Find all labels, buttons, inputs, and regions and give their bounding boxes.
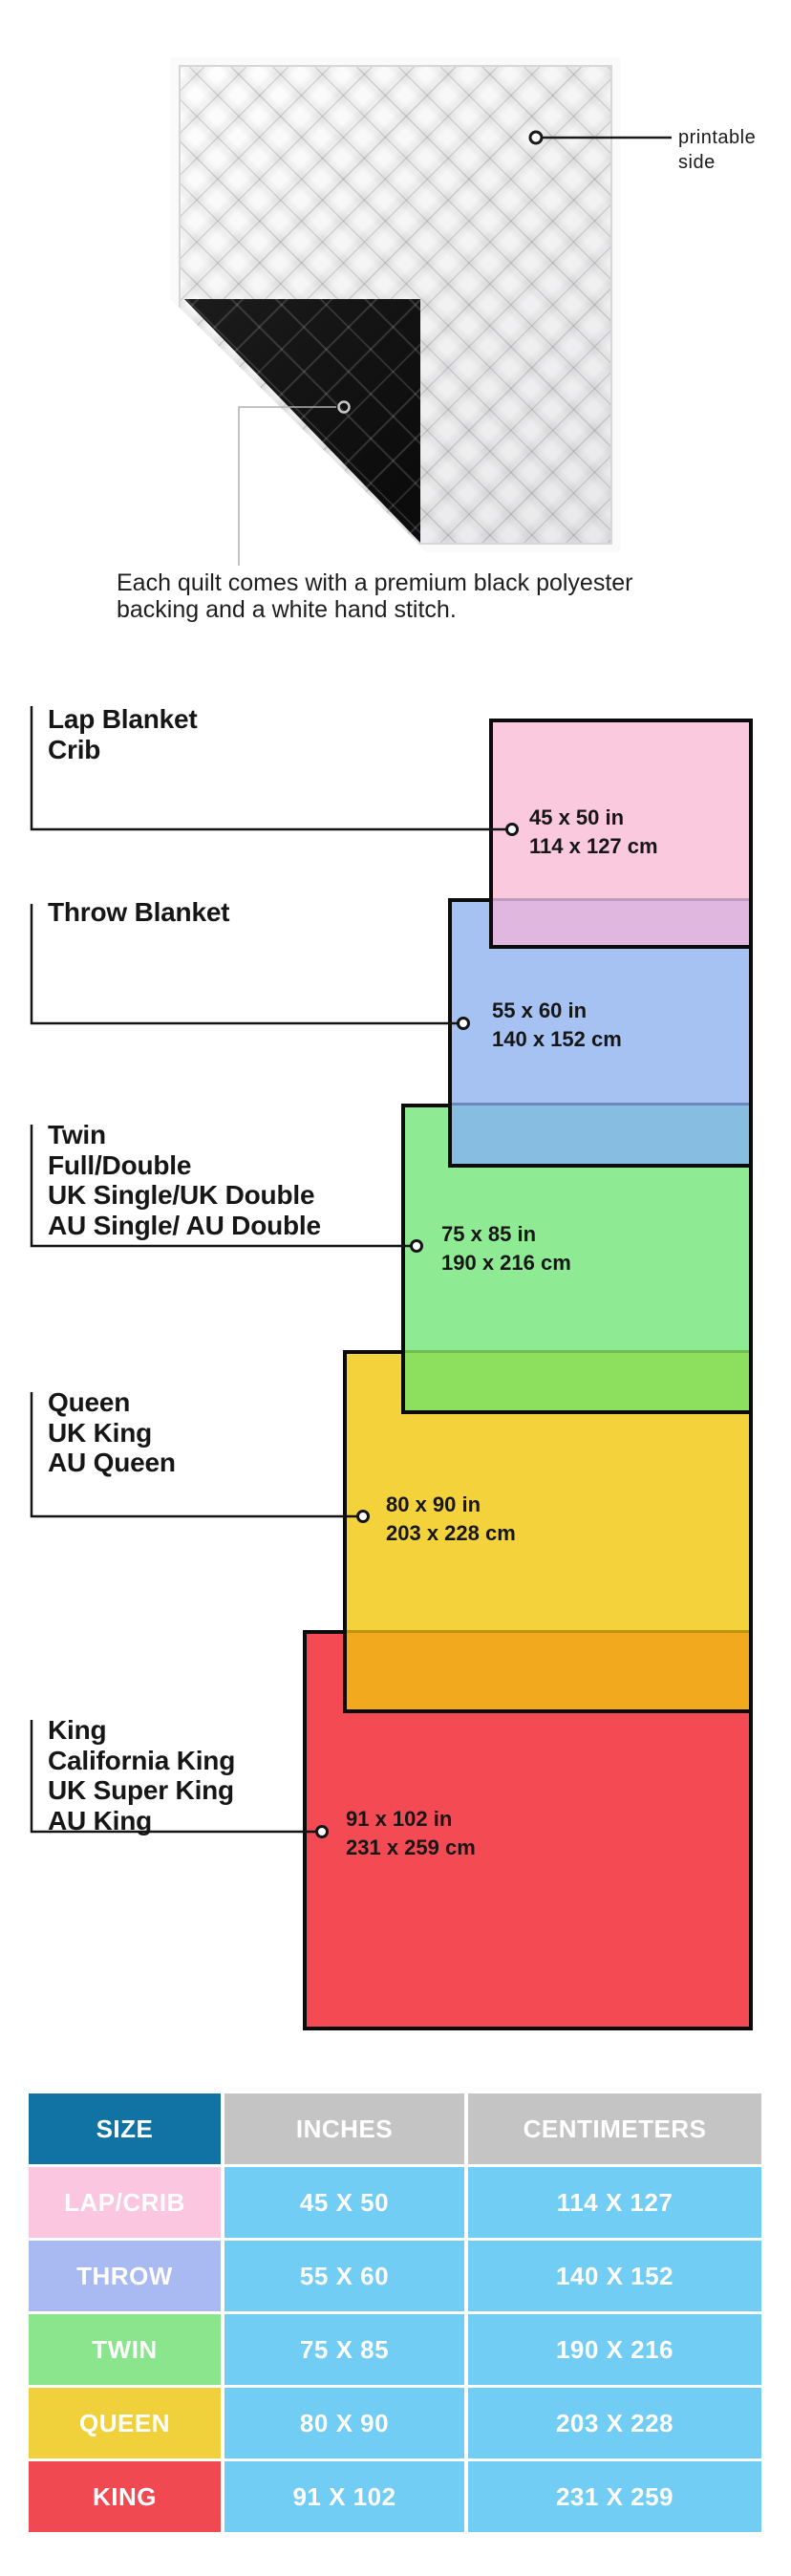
backing-caption: Each quilt comes with a premium black po…	[117, 570, 690, 623]
size-label-line: Twin	[48, 1120, 321, 1150]
size-label-line: UK Single/UK Double	[48, 1180, 321, 1211]
dimension-cm: 114 x 127 cm	[529, 832, 658, 861]
dimension-inches: 55 x 60 in	[492, 997, 622, 1025]
size-label-lap: Lap Blanket Crib	[48, 704, 198, 764]
table-cell-cm-twin: 190 X 216	[468, 2314, 761, 2385]
table-cell-cm-king: 231 X 259	[468, 2461, 761, 2532]
table-cell-inches-twin: 75 X 85	[224, 2314, 464, 2385]
overlap-band-throw-over-twin	[452, 1103, 749, 1164]
size-table: SIZE INCHES CENTIMETERS LAP/CRIB 45 X 50…	[29, 2093, 761, 2532]
dimension-inches: 80 x 90 in	[386, 1491, 516, 1519]
size-label-line: UK King	[48, 1418, 176, 1449]
table-cell-inches-queen: 80 X 90	[224, 2388, 464, 2458]
table-cell-cm-lap: 114 X 127	[468, 2167, 761, 2238]
size-label-line: AU King	[48, 1806, 235, 1836]
size-label-line: Lap Blanket	[48, 704, 198, 735]
printable-side-label: printable side	[678, 125, 778, 175]
table-cell-inches-throw: 55 X 60	[224, 2241, 464, 2311]
overlap-band-lap-over-throw	[493, 898, 749, 945]
dimension-text-lap: 45 x 50 in 114 x 127 cm	[529, 804, 658, 861]
dimension-cm: 231 x 259 cm	[346, 1834, 476, 1862]
table-cell-inches-king: 91 X 102	[224, 2461, 464, 2532]
size-label-line: AU Single/ AU Double	[48, 1211, 321, 1241]
dimension-cm: 190 x 216 cm	[441, 1249, 571, 1277]
dimension-text-twin: 75 x 85 in 190 x 216 cm	[441, 1220, 571, 1277]
table-cell-cm-queen: 203 X 228	[468, 2388, 761, 2458]
dimension-inches: 75 x 85 in	[441, 1220, 571, 1249]
size-label-line: AU Queen	[48, 1448, 176, 1478]
table-cell-size-throw: THROW	[29, 2241, 221, 2311]
dimension-cm: 203 x 228 cm	[386, 1519, 516, 1548]
dimension-inches: 45 x 50 in	[529, 804, 658, 832]
dimension-inches: 91 x 102 in	[346, 1805, 476, 1834]
size-label-line: King	[48, 1715, 235, 1746]
size-label-line: California King	[48, 1746, 235, 1776]
dimension-text-king: 91 x 102 in 231 x 259 cm	[346, 1805, 476, 1862]
dimension-text-throw: 55 x 60 in 140 x 152 cm	[492, 997, 622, 1054]
table-cell-cm-throw: 140 X 152	[468, 2241, 761, 2311]
size-label-line: Throw Blanket	[48, 897, 229, 928]
size-label-line: UK Super King	[48, 1775, 235, 1806]
table-header-size: SIZE	[29, 2093, 221, 2164]
quilt-size-chart-page: printable side Each quilt comes with a p…	[0, 0, 791, 2576]
size-label-line: Full/Double	[48, 1150, 321, 1181]
table-cell-inches-lap: 45 X 50	[224, 2167, 464, 2238]
table-cell-size-queen: QUEEN	[29, 2388, 221, 2458]
table-cell-size-king: KING	[29, 2461, 221, 2532]
overlap-band-queen-over-king	[347, 1630, 749, 1709]
size-label-throw: Throw Blanket	[48, 897, 229, 928]
table-cell-size-twin: TWIN	[29, 2314, 221, 2385]
size-label-twin: Twin Full/Double UK Single/UK Double AU …	[48, 1120, 321, 1240]
size-label-king: King California King UK Super King AU Ki…	[48, 1715, 235, 1835]
table-header-centimeters: CENTIMETERS	[468, 2093, 761, 2164]
overlap-band-twin-over-queen	[405, 1350, 749, 1410]
table-header-inches: INCHES	[224, 2093, 464, 2164]
dimension-cm: 140 x 152 cm	[492, 1025, 622, 1054]
size-label-queen: Queen UK King AU Queen	[48, 1387, 176, 1478]
dimension-text-queen: 80 x 90 in 203 x 228 cm	[386, 1491, 516, 1548]
quilt-photo-figure	[0, 0, 791, 669]
size-label-line: Crib	[48, 735, 198, 765]
size-label-line: Queen	[48, 1387, 176, 1418]
table-cell-size-lap: LAP/CRIB	[29, 2167, 221, 2238]
